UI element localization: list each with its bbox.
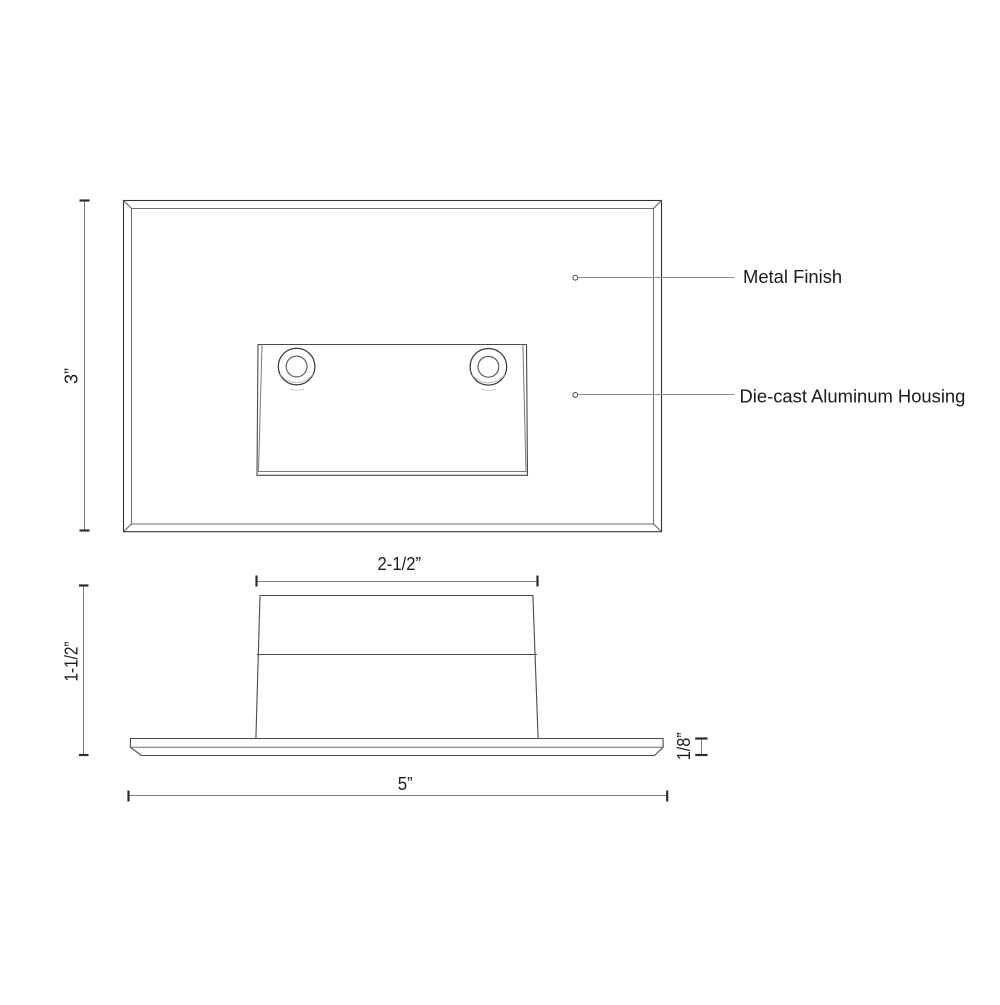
svg-text:2-1/2”: 2-1/2” [378, 554, 422, 574]
svg-text:3”: 3” [61, 368, 81, 384]
svg-text:Die-cast Aluminum Housing: Die-cast Aluminum Housing [740, 385, 966, 406]
svg-text:Metal Finish: Metal Finish [743, 266, 842, 287]
svg-text:1/8”: 1/8” [674, 732, 694, 760]
svg-text:1-1/2”: 1-1/2” [61, 642, 81, 682]
svg-text:5”: 5” [398, 774, 413, 794]
